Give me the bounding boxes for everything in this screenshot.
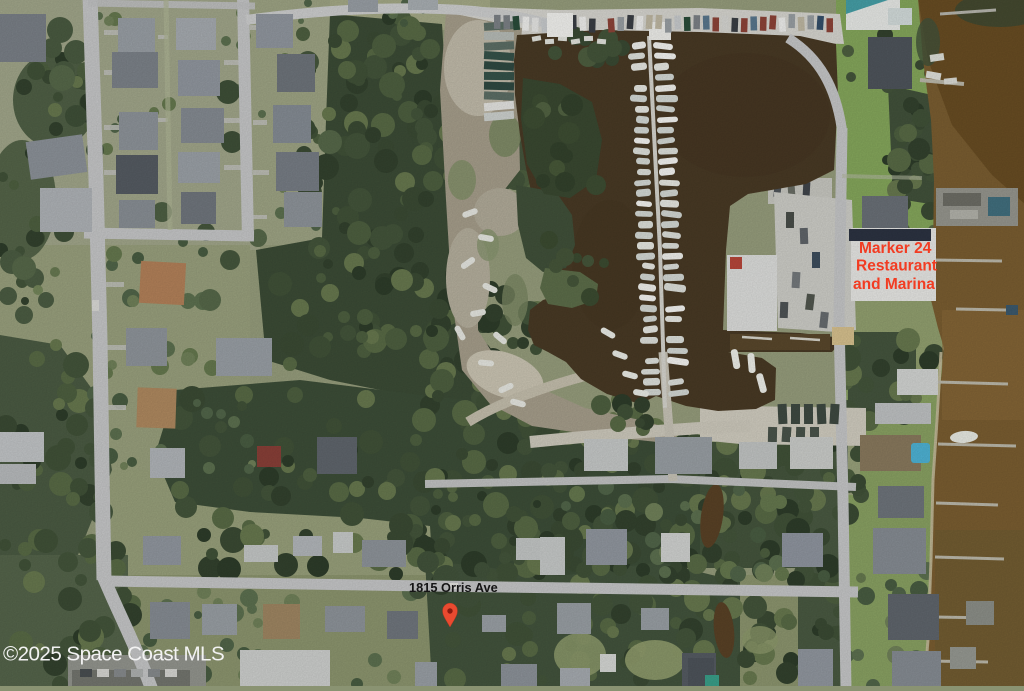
svg-text:©2025 Space Coast MLS: ©2025 Space Coast MLS	[3, 643, 224, 666]
svg-text:and Marina: and Marina	[853, 276, 935, 293]
svg-text:Marker 24: Marker 24	[859, 240, 932, 257]
svg-text:1815 Orris Ave: 1815 Orris Ave	[409, 580, 498, 595]
svg-text:Restaurant: Restaurant	[856, 258, 937, 275]
